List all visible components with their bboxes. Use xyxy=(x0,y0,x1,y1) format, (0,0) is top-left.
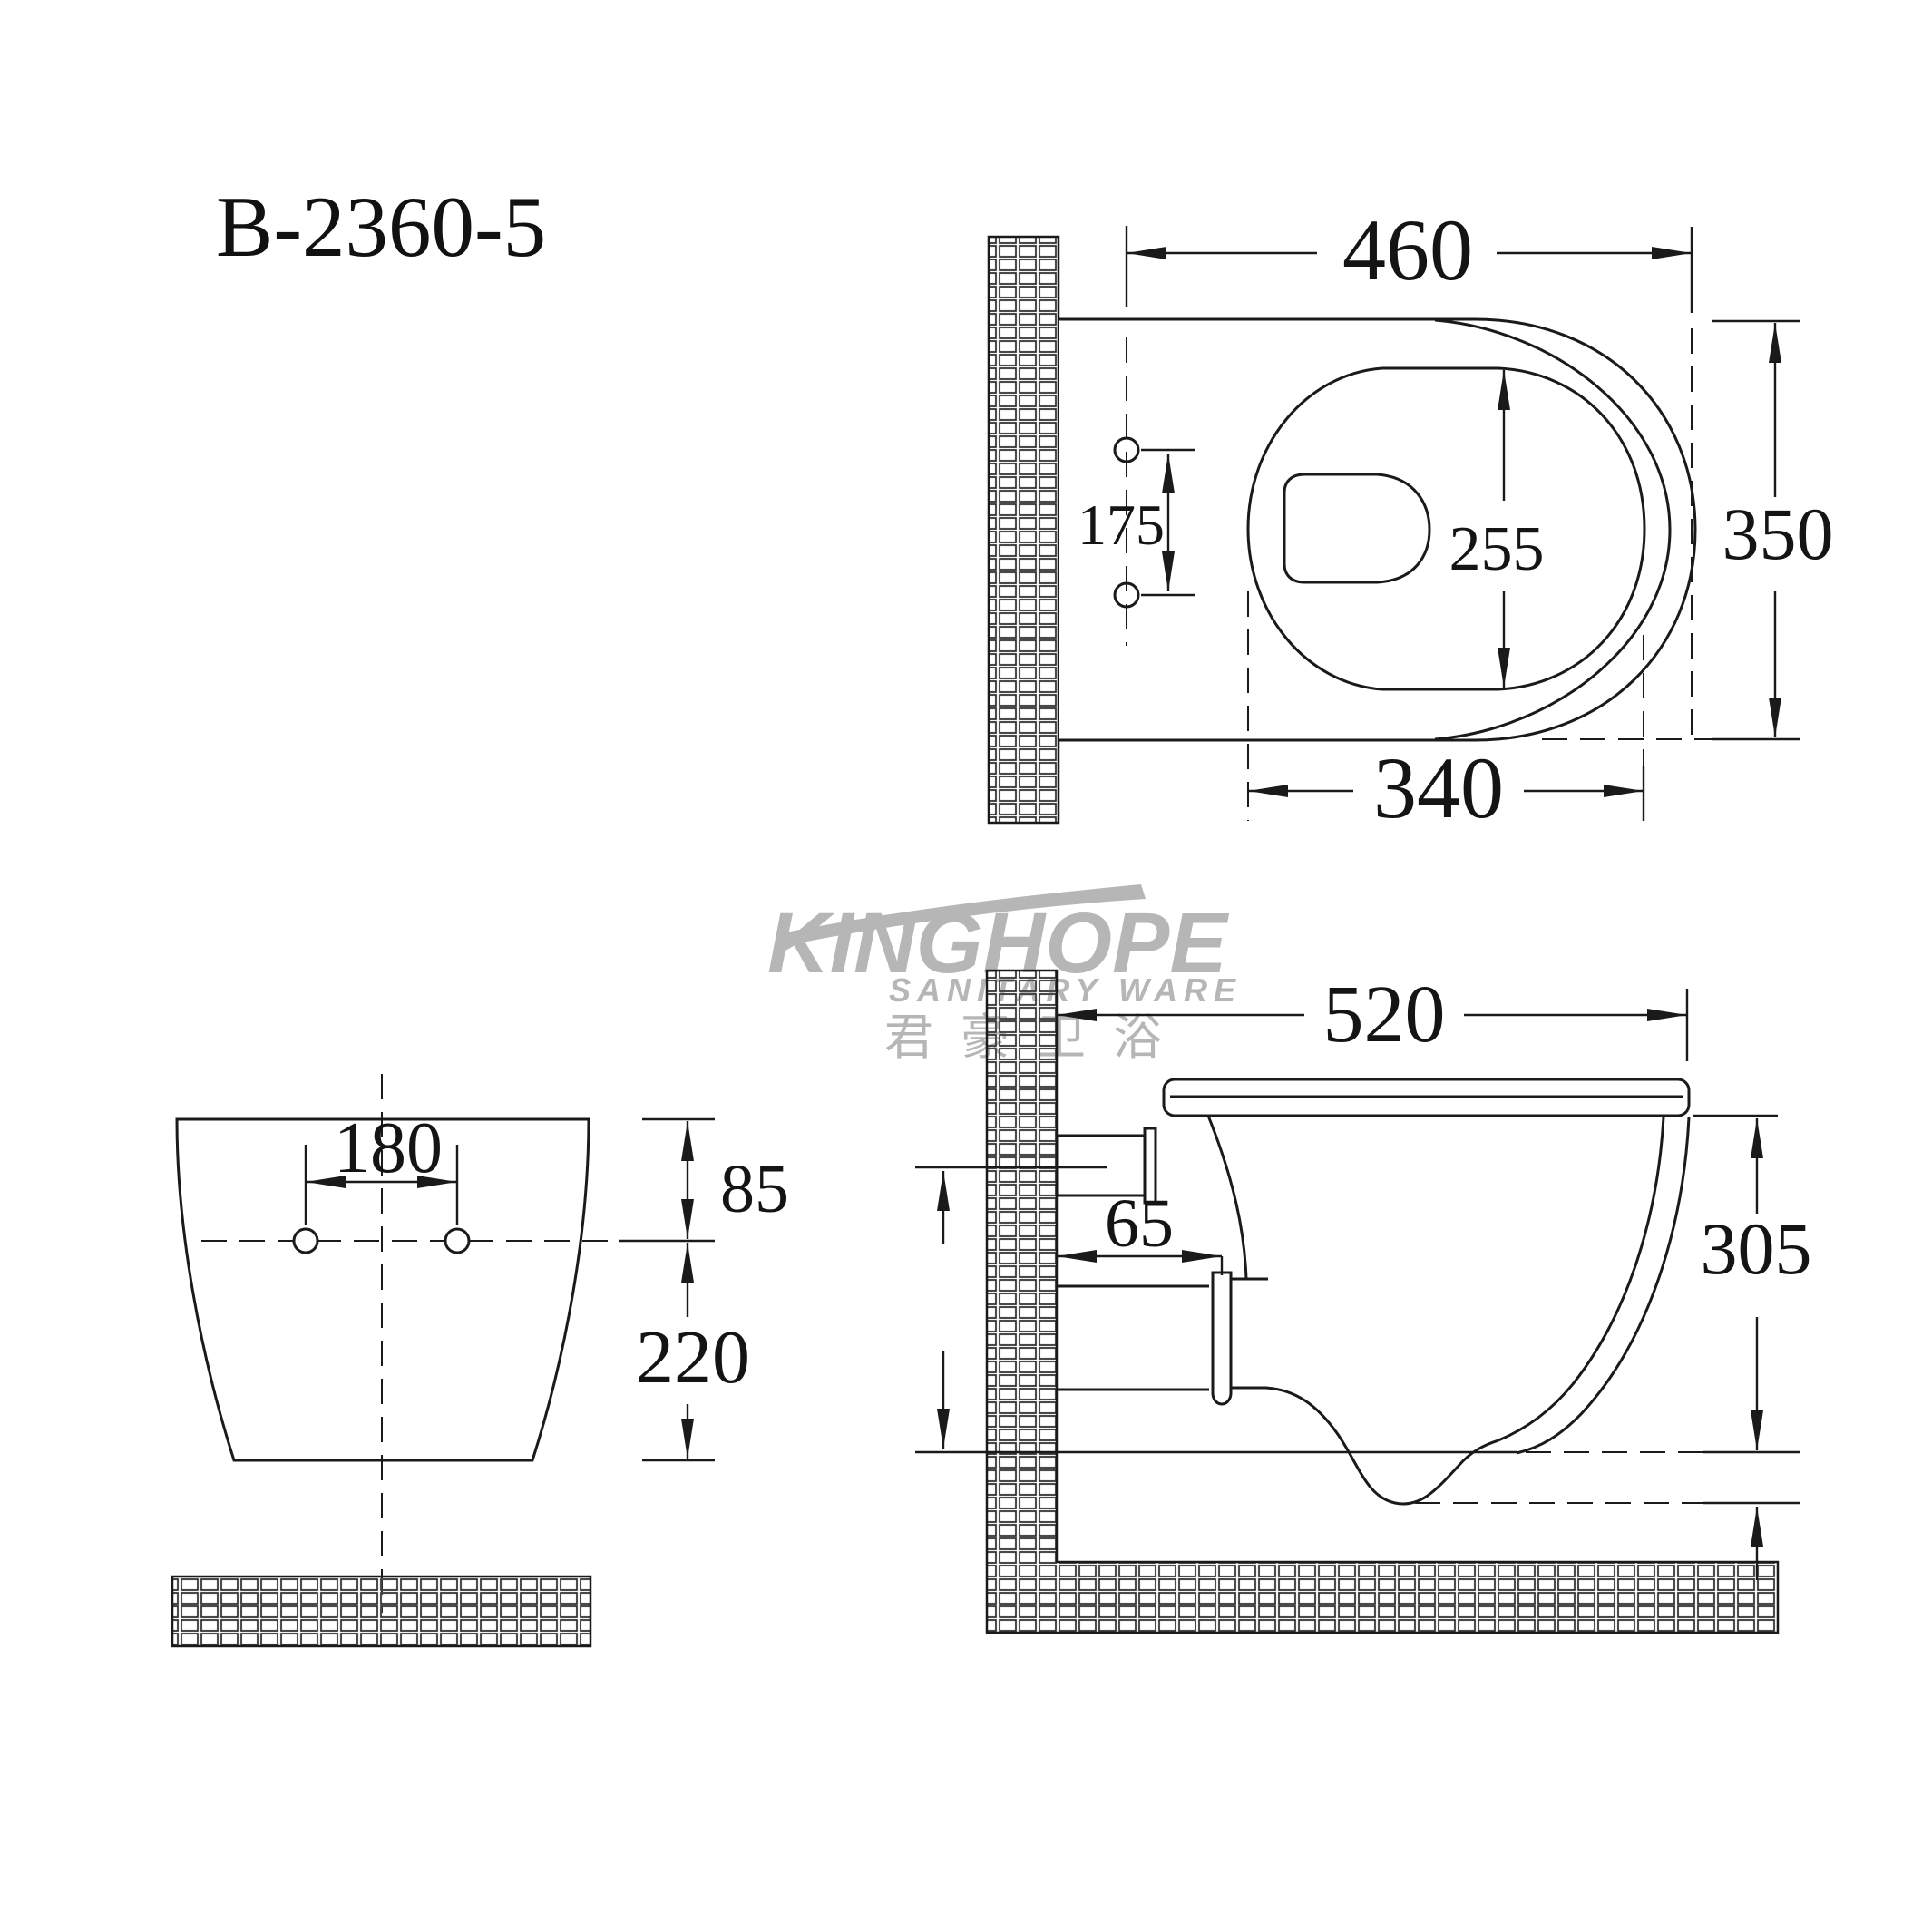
drain-pipe xyxy=(1213,1273,1231,1404)
bowl-back-curve xyxy=(1208,1116,1246,1279)
dim-overall-width: 460 xyxy=(1127,201,1692,298)
wall-floor-section-side-view xyxy=(987,971,1778,1633)
dim-height: 305 xyxy=(1693,1116,1812,1580)
dim-label-350: 350 xyxy=(1722,493,1834,575)
dim-overall-depth: 350 xyxy=(1722,323,1834,737)
bowl-bottom-curve xyxy=(1230,1388,1498,1504)
dim-label-220: 220 xyxy=(636,1315,750,1400)
dim-label-65: 65 xyxy=(1105,1186,1174,1262)
dim-label-520: 520 xyxy=(1323,970,1446,1059)
dim-drain-offset: 65 xyxy=(1057,1186,1222,1275)
bowl-outer-curve xyxy=(1517,1117,1689,1453)
dim-label-460: 460 xyxy=(1342,201,1473,298)
dim-label-305: 305 xyxy=(1701,1207,1812,1290)
watermark-tagline: SANITARY WARE xyxy=(889,971,1242,1009)
dim-label-85: 85 xyxy=(720,1151,789,1227)
dimension-drawing: KINGHOPE SANITARY WARE 君豪卫浴 B-2360-5 xyxy=(0,0,1932,1932)
bowl-inner-curve xyxy=(1498,1117,1664,1440)
flush-outlet xyxy=(1284,474,1429,582)
fixing-hole-left xyxy=(294,1229,317,1253)
top-view: 460 175 255 350 340 xyxy=(989,201,1834,836)
side-view: 520 65 305 xyxy=(915,970,1812,1633)
dim-label-255: 255 xyxy=(1449,514,1545,584)
dim-bowl-width: 340 xyxy=(1248,739,1644,836)
dim-label-175: 175 xyxy=(1078,493,1165,557)
technical-drawing-page: KINGHOPE SANITARY WARE 君豪卫浴 B-2360-5 xyxy=(0,0,1932,1932)
dim-holes-to-bottom: 220 xyxy=(636,1243,750,1460)
dim-top-to-holes: 85 xyxy=(619,1119,789,1241)
front-view: 180 85 220 xyxy=(172,1074,789,1646)
model-number: B-2360-5 xyxy=(216,179,546,275)
dim-label-180: 180 xyxy=(334,1108,443,1188)
fixing-hole-right xyxy=(445,1229,469,1253)
wall-section-top-view xyxy=(989,237,1059,823)
floor-section-front-view xyxy=(172,1576,590,1646)
dim-label-340: 340 xyxy=(1373,739,1504,836)
